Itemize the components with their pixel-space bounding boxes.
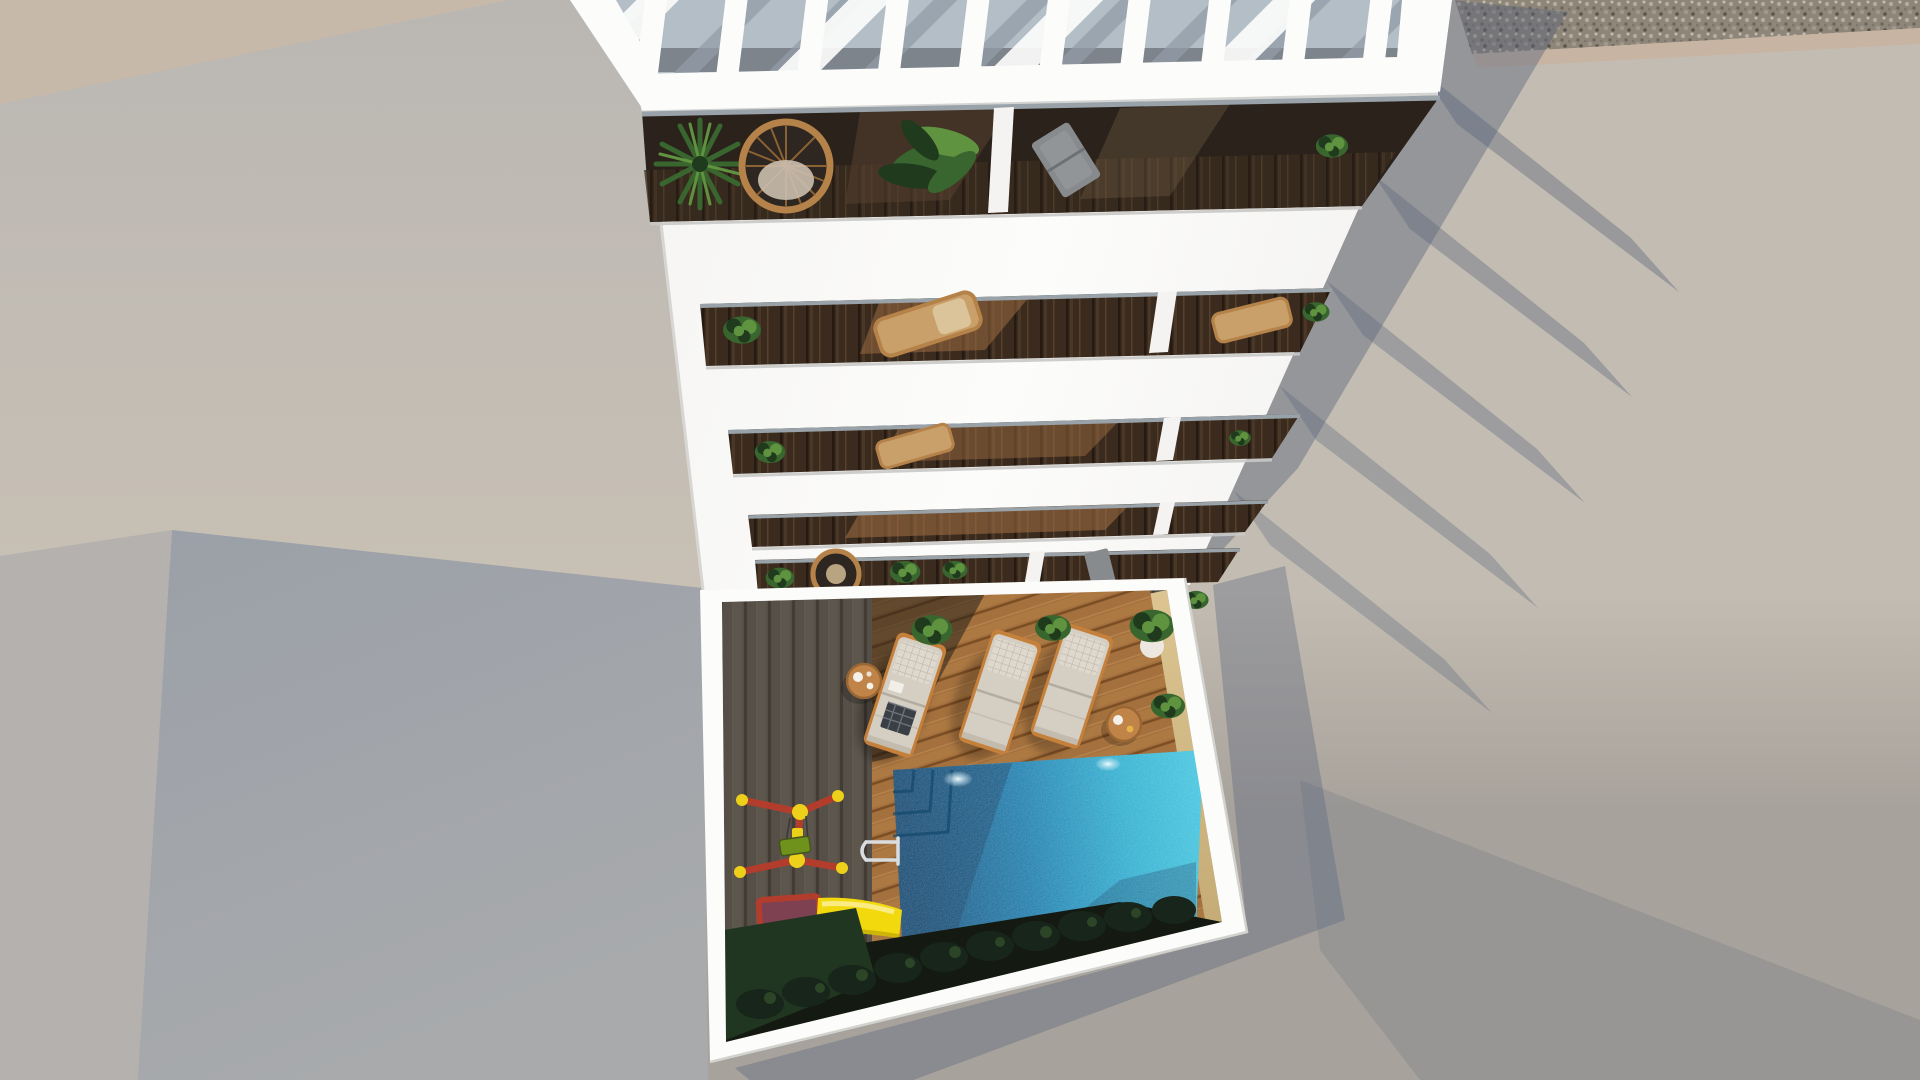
left-wall-shadowed [138, 530, 708, 1080]
balcony-plant [890, 561, 921, 583]
pool-light [943, 771, 973, 787]
balcony-plant [755, 441, 786, 463]
rattan-hanging-chair [740, 120, 832, 212]
pool-light [1095, 757, 1121, 771]
balcony-plant [723, 316, 761, 343]
balcony-plant [1303, 302, 1330, 322]
render-canvas: Aerial top-down render of a white multi-… [0, 0, 1920, 1080]
aerial-render: Aerial top-down render of a white multi-… [0, 0, 1920, 1080]
balcony-plant [1229, 430, 1251, 446]
balcony-plant [942, 561, 967, 579]
balcony-floor-1 [642, 96, 1440, 222]
left-roof-plane [0, 0, 703, 588]
balcony-plant [1316, 134, 1348, 157]
balcony-plant [766, 568, 795, 589]
